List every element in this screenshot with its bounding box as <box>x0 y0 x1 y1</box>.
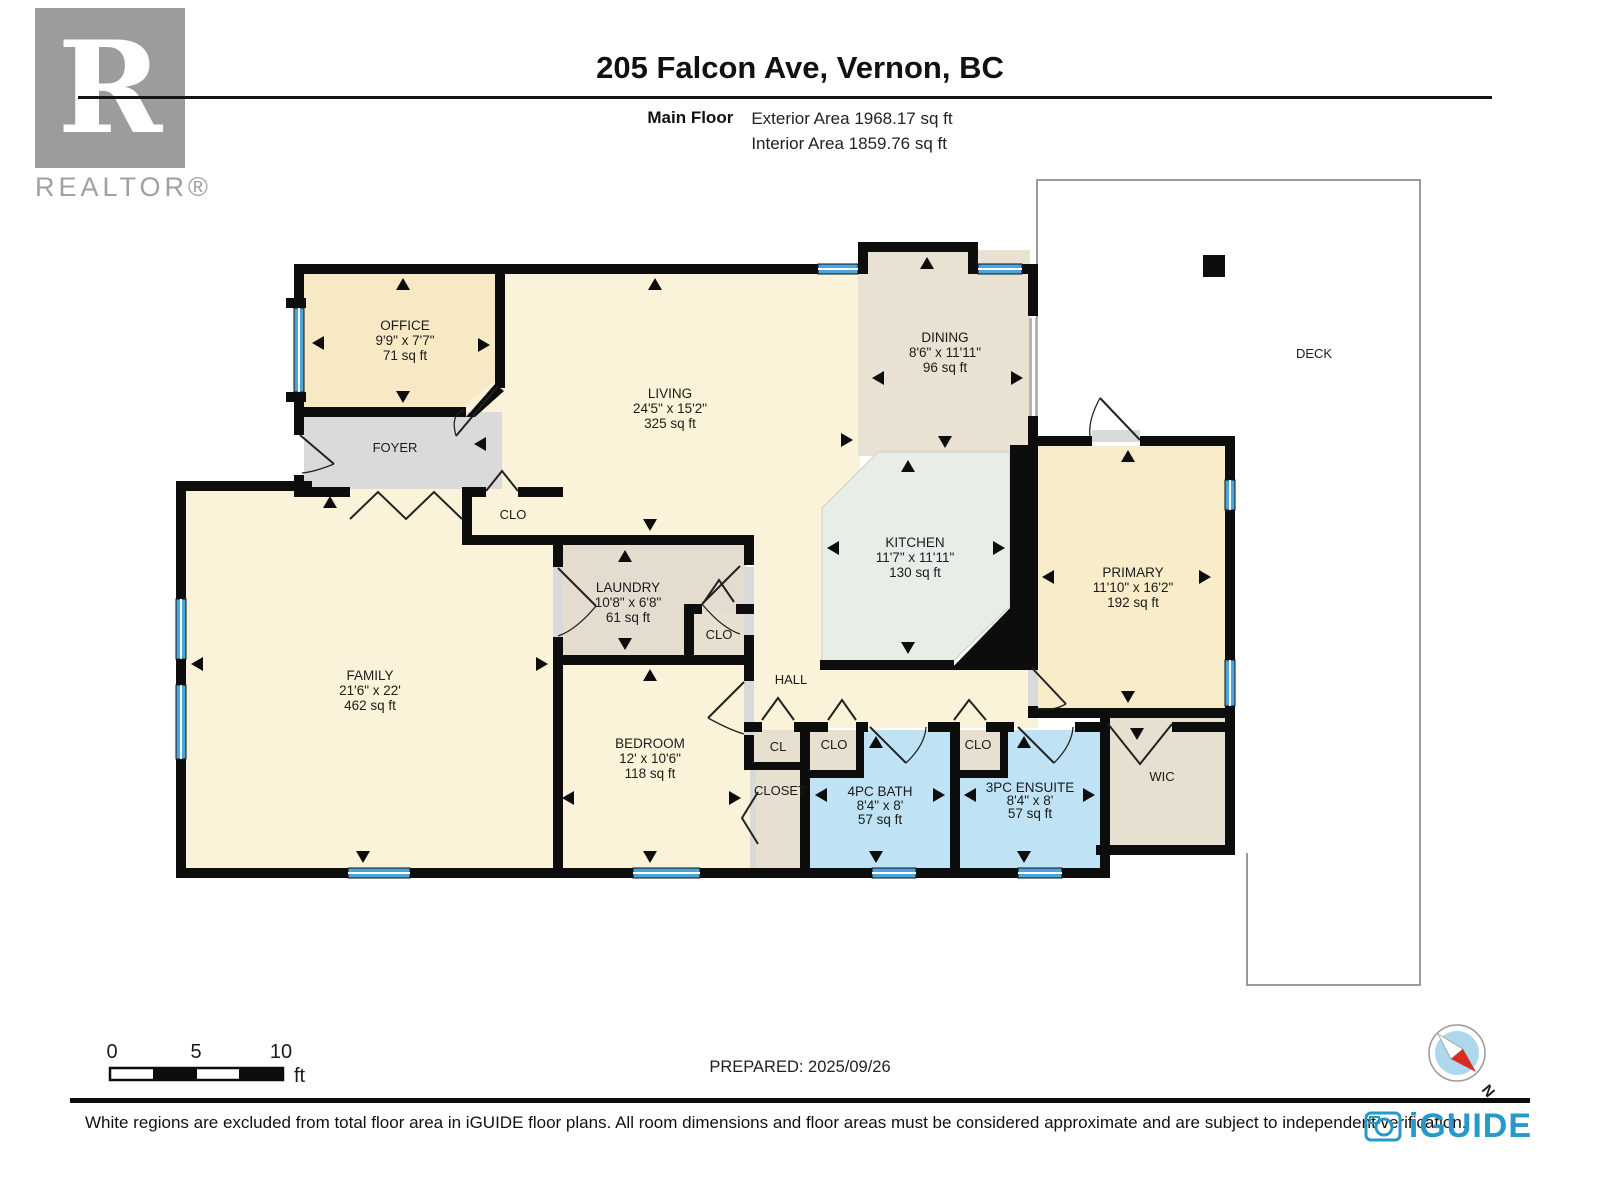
room-label-bedroom: BEDROOM12' x 10'6"118 sq ft <box>615 736 685 781</box>
label-clo-laundry: CLO <box>706 627 733 642</box>
iguide-camera-icon <box>1363 1106 1403 1146</box>
room-label-family: FAMILY21'6" x 22'462 sq ft <box>339 668 401 713</box>
floor-info: Main Floor Exterior Area 1968.17 sq ft I… <box>0 106 1600 156</box>
title-divider <box>78 96 1492 99</box>
area-summary: Exterior Area 1968.17 sq ft Interior Are… <box>751 106 952 156</box>
label-clo-bath: CLO <box>821 737 848 752</box>
label-clo-foyer: CLO <box>500 507 527 522</box>
sliding-door <box>1029 318 1038 416</box>
floor-plan-drawing: OFFICE9'9" x 7'7"71 sq ft LIVING24'5" x … <box>0 0 1600 1200</box>
iguide-wordmark: iGUIDE <box>1409 1107 1532 1146</box>
floor-label: Main Floor <box>647 106 733 156</box>
label-foyer: FOYER <box>373 440 418 455</box>
label-wic: WIC <box>1149 769 1174 784</box>
label-closet: CLOSET <box>754 783 806 798</box>
window <box>818 264 858 274</box>
label-cl: CL <box>770 739 787 754</box>
deck-post <box>1203 255 1225 277</box>
window <box>872 868 916 878</box>
window <box>176 685 186 759</box>
label-hall: HALL <box>775 672 808 687</box>
label-clo-ensuite: CLO <box>965 737 992 752</box>
realtor-wordmark: REALTOR® <box>35 172 195 203</box>
iguide-logo: iGUIDE <box>1363 1106 1532 1146</box>
interior-area: Interior Area 1859.76 sq ft <box>751 131 952 156</box>
window <box>1225 660 1235 706</box>
label-deck: DECK <box>1296 346 1332 361</box>
window <box>1225 480 1235 510</box>
window <box>176 599 186 659</box>
floor-plan-page: R REALTOR® 205 Falcon Ave, Vernon, BC Ma… <box>0 0 1600 1200</box>
exterior-area: Exterior Area 1968.17 sq ft <box>751 106 952 131</box>
window <box>294 308 304 392</box>
page-title: 205 Falcon Ave, Vernon, BC <box>0 50 1600 86</box>
prepared-date: PREPARED: 2025/09/26 <box>0 1058 1600 1077</box>
window <box>978 264 1022 274</box>
window <box>633 868 700 878</box>
room-label-office: OFFICE9'9" x 7'7"71 sq ft <box>375 318 434 363</box>
footer-divider <box>70 1098 1530 1103</box>
disclaimer-text: White regions are excluded from total fl… <box>85 1113 1467 1133</box>
window <box>348 868 410 878</box>
window <box>1018 868 1062 878</box>
